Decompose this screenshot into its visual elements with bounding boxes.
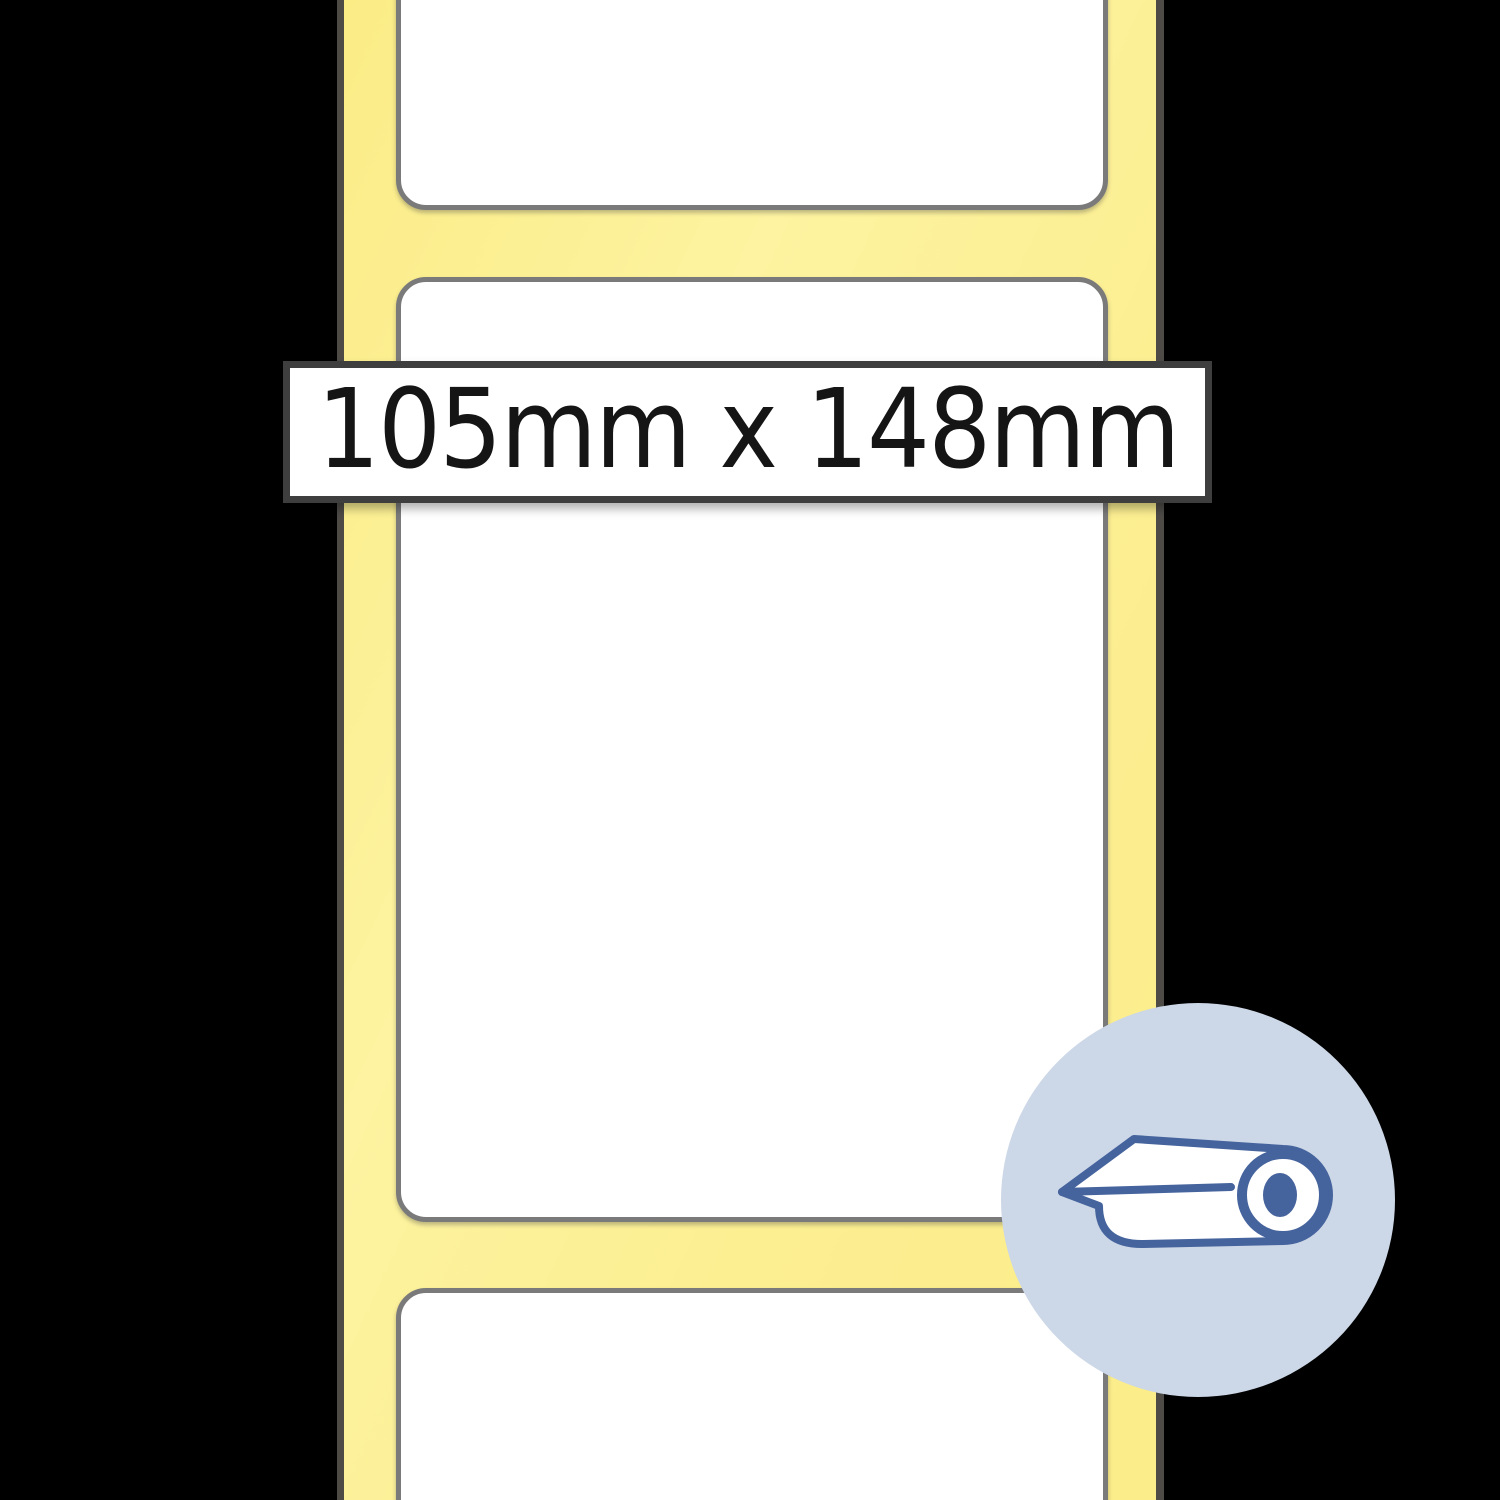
product-image: 105mm x 148mm (0, 0, 1500, 1500)
roll-core (1263, 1173, 1297, 1217)
roll-sheet-edge (1062, 1187, 1231, 1192)
size-label: 105mm x 148mm (317, 374, 1179, 490)
blank-label-top (396, 0, 1108, 210)
size-banner: 105mm x 148mm (283, 361, 1212, 503)
paper-roll-icon (1001, 1003, 1395, 1397)
roll-badge (1001, 1003, 1395, 1397)
